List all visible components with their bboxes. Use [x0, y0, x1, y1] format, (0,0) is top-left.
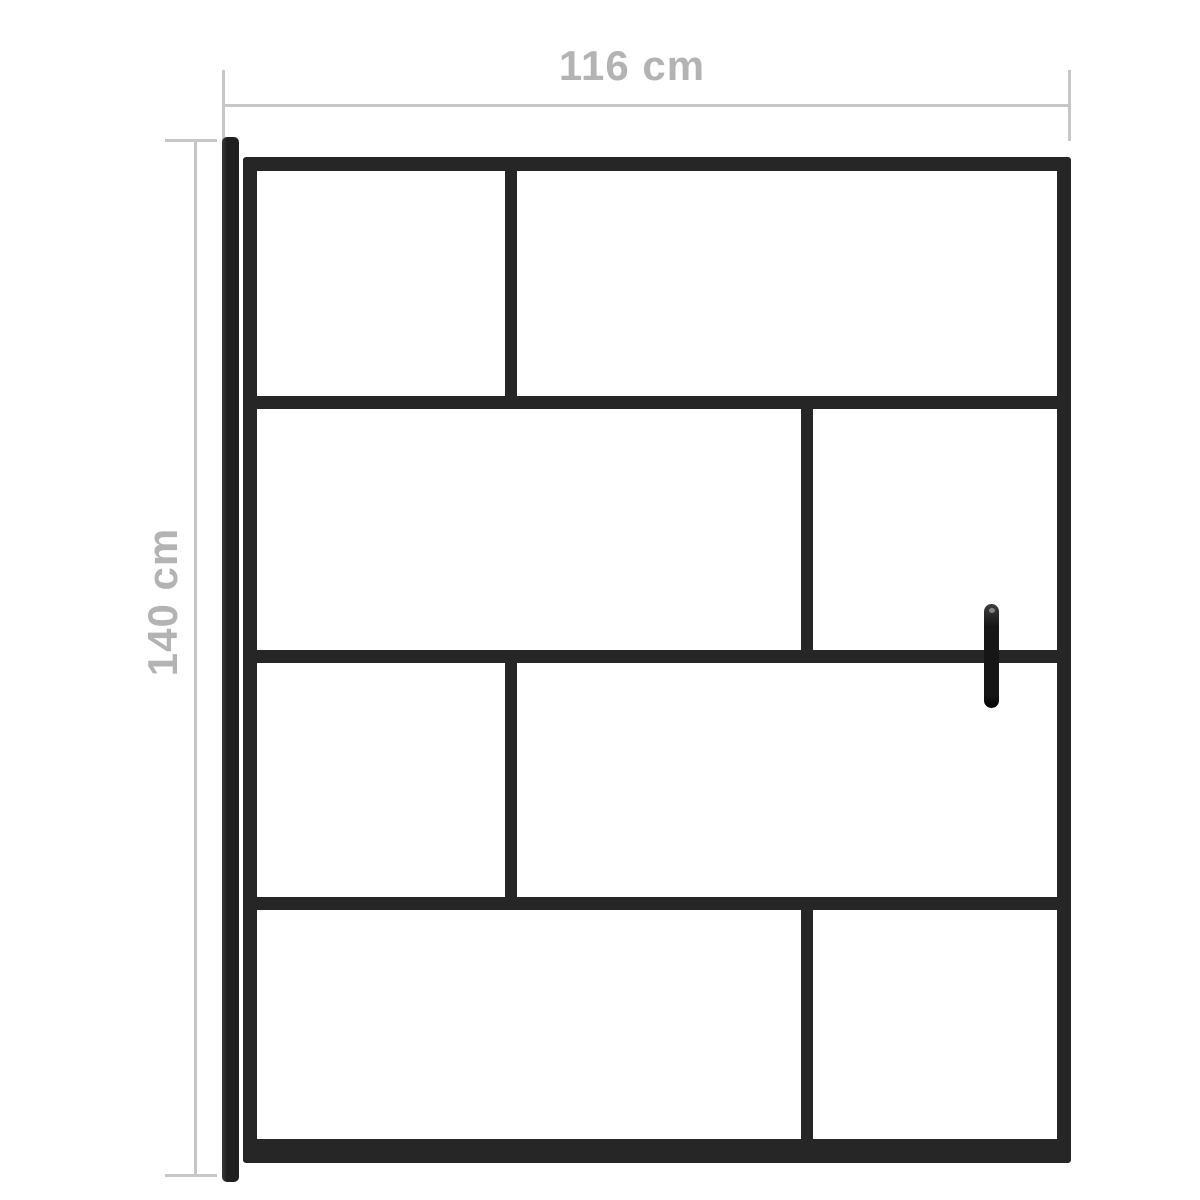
product-dimension-diagram: 116 cm 140 cm [0, 0, 1200, 1200]
glass-divider-row2 [801, 408, 813, 652]
glass-divider-row3 [505, 662, 517, 899]
horizontal-rail-1 [255, 396, 1059, 409]
door-handle [984, 604, 999, 708]
height-dimension-tick-bottom [165, 1174, 217, 1177]
horizontal-rail-2 [255, 650, 1059, 663]
wall-profile-bar [222, 137, 239, 1182]
height-dimension-line [194, 139, 197, 1176]
glass-divider-row1 [505, 169, 517, 398]
height-dimension-tick-top [165, 139, 217, 142]
height-dimension-label: 140 cm [132, 490, 194, 714]
glass-divider-row4 [801, 909, 813, 1141]
shower-screen-frame [243, 157, 1071, 1163]
width-dimension-tick-left [222, 70, 225, 141]
width-dimension-label: 116 cm [520, 40, 744, 92]
width-dimension-line [223, 104, 1071, 107]
horizontal-rail-3 [255, 897, 1059, 910]
width-dimension-tick-right [1068, 70, 1071, 141]
